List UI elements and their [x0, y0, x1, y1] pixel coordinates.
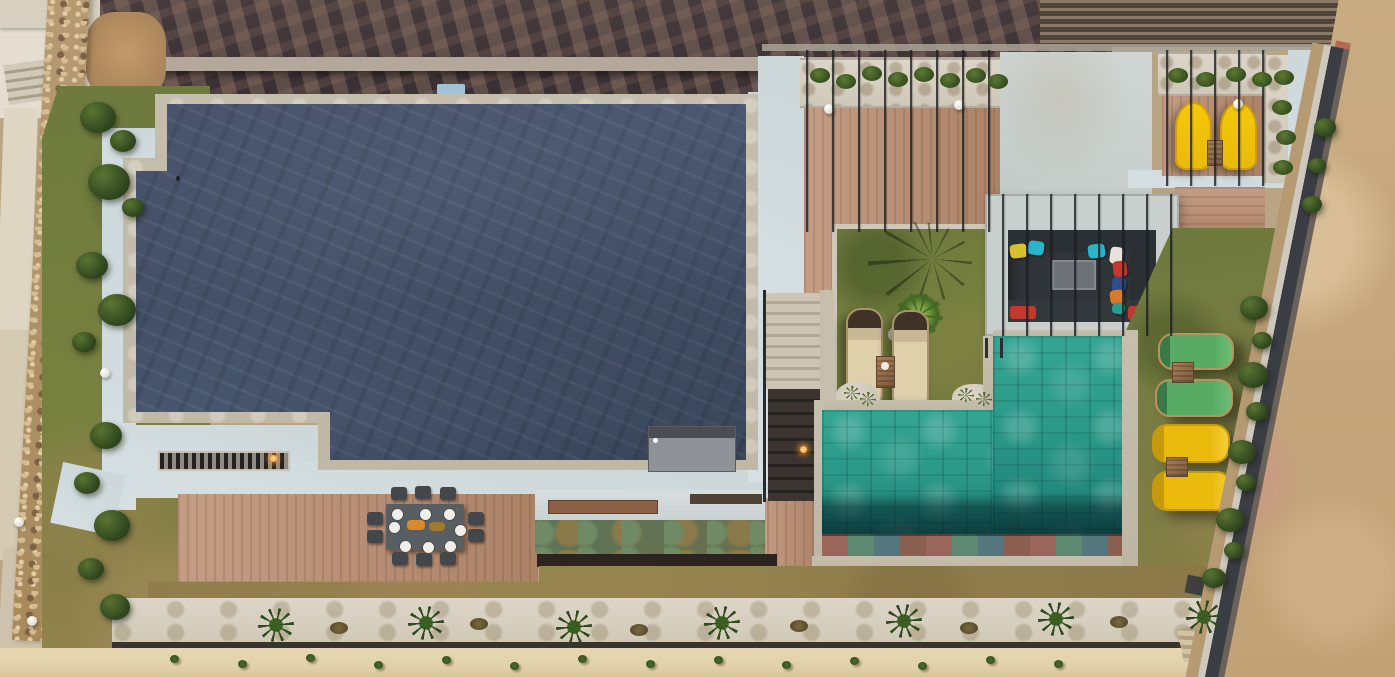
path-plant: [510, 662, 519, 670]
planter-plant: [862, 66, 882, 81]
pool-ladder: [985, 338, 1003, 358]
wall-bush: [1302, 196, 1322, 213]
pergola-bar: [1190, 50, 1192, 186]
green-sun-lounger: [1158, 333, 1234, 370]
garden-globe-light: [27, 616, 37, 626]
palm-tree-shadow: [868, 222, 972, 304]
plant-tuft: [630, 624, 648, 636]
pergola-bar: [1002, 194, 1004, 336]
roof-speck: [176, 176, 180, 181]
dining-chair: [367, 512, 383, 525]
dining-plate: [420, 509, 431, 520]
wall-bush: [1238, 362, 1268, 388]
dining-chair: [440, 552, 456, 565]
deck-lamp-lit: [270, 455, 277, 462]
lounge-pillow-cyan: [1027, 240, 1045, 256]
dining-chair: [367, 530, 383, 543]
plant-tuft: [470, 618, 488, 630]
garden-bush: [122, 198, 144, 217]
bed-palm: [408, 606, 444, 640]
lounger-side-table: [876, 356, 895, 388]
path-plant: [986, 656, 995, 664]
planter-plant: [940, 73, 960, 88]
plant-tuft: [960, 622, 978, 634]
dining-plate: [400, 541, 411, 552]
planter-plant: [836, 74, 856, 89]
garden-bush: [90, 422, 122, 449]
pergola-bar: [832, 50, 834, 232]
garden-globe-light: [14, 517, 24, 527]
red-cushion: [1010, 306, 1036, 319]
garden-bush: [76, 252, 108, 279]
lounge-pillow-red: [1112, 260, 1128, 278]
wall-bush: [1252, 332, 1272, 349]
pocket-plant: [844, 386, 860, 400]
garden-bush: [78, 558, 104, 580]
path-plant: [374, 661, 383, 669]
garden-bush: [88, 164, 130, 200]
garden-bush: [74, 472, 100, 494]
planter-plant: [1273, 160, 1293, 175]
clerestory-slot: [690, 494, 762, 504]
pocket-plant: [860, 392, 876, 406]
garden-bush: [100, 594, 130, 620]
planter-plant: [810, 68, 830, 83]
pool-deep-end: [822, 492, 1123, 536]
plant-tuft: [790, 620, 808, 632]
pergola-bar: [1262, 50, 1264, 186]
path-plant: [646, 660, 655, 668]
planter-plant: [1168, 68, 1188, 83]
dining-plate: [423, 542, 434, 553]
bed-palm: [258, 608, 294, 642]
pocket-plant: [958, 388, 974, 402]
planter-plant: [1226, 67, 1246, 82]
green-sun-lounger: [1155, 379, 1233, 417]
blue-cover-object: [437, 84, 465, 96]
path-plant: [1054, 660, 1063, 668]
path-plant: [170, 655, 179, 663]
pergola-bar: [1170, 194, 1172, 336]
pergola-bar: [1166, 50, 1168, 186]
dining-chair: [391, 487, 407, 500]
wall-bush: [1216, 508, 1244, 532]
tan-sun-lounger: [892, 310, 929, 411]
lounge-pillow-yellow: [1009, 243, 1028, 259]
bed-palm: [1038, 602, 1074, 636]
pool-coping: [1122, 330, 1138, 572]
food-platter: [407, 520, 425, 530]
path-plant: [782, 661, 791, 669]
pergola-bar: [962, 50, 964, 232]
planter-plant: [1272, 100, 1292, 115]
garden-bush: [110, 130, 136, 152]
pergola-bar: [936, 50, 938, 232]
dining-plate: [389, 522, 400, 533]
concrete-walkway-stairs: [758, 56, 804, 300]
garden-bush: [94, 510, 130, 541]
pergola-bar: [1050, 194, 1052, 336]
stone-steps: [766, 293, 822, 389]
dining-plate: [444, 509, 455, 520]
planter-plant: [1276, 130, 1296, 145]
lounger-side-table: [1172, 362, 1194, 383]
planter-plant: [988, 74, 1008, 89]
wall-bush: [1240, 296, 1268, 320]
dining-wood-deck: [178, 494, 538, 594]
pergola-bar: [1098, 194, 1100, 336]
dining-chair: [415, 486, 431, 499]
bed-palm: [704, 606, 740, 640]
garden-bush: [98, 294, 136, 326]
dining-plate: [392, 509, 403, 520]
bed-palm: [556, 610, 592, 644]
bed-palm: [886, 604, 922, 638]
garden-globe-light: [100, 368, 110, 378]
planter-plant: [888, 72, 908, 87]
planter-plant: [966, 68, 986, 83]
path-plant: [442, 656, 451, 664]
pergola-bar: [910, 50, 912, 232]
path-plant: [918, 662, 927, 670]
pergola-top-beam: [762, 44, 1342, 51]
dining-chair: [468, 512, 484, 525]
pergola-bar: [1122, 194, 1124, 336]
wall-bush: [1224, 542, 1244, 559]
path-plant: [578, 655, 587, 663]
pergola-bar: [1146, 194, 1148, 336]
dining-chair: [392, 552, 408, 565]
wood-inset-strip: [548, 500, 658, 514]
pergola-bar: [1026, 194, 1028, 336]
bed-palm: [1186, 600, 1222, 634]
lounge-pillow-cyan: [1087, 243, 1106, 259]
plant-tuft: [1110, 616, 1128, 628]
planter-plant: [914, 67, 934, 82]
pergola-bar: [1074, 194, 1076, 336]
path-plant: [238, 660, 247, 668]
plant-tuft: [330, 622, 348, 634]
stair-lamp-lit: [800, 446, 807, 453]
yellow-sun-lounger: [1152, 424, 1230, 463]
pergola-bar: [884, 50, 886, 232]
planter-plant: [1274, 70, 1294, 85]
wall-bush: [1228, 440, 1256, 464]
dining-plate: [455, 525, 466, 536]
wall-bush: [1314, 118, 1336, 137]
path-plant: [850, 657, 859, 665]
path-plant: [714, 656, 723, 664]
lounger-side-table: [1166, 457, 1188, 477]
pergola-bar: [806, 50, 808, 232]
dining-chair: [440, 487, 456, 500]
garden-bush: [80, 102, 116, 133]
food-platter: [429, 522, 445, 531]
pergola-bar: [858, 50, 860, 232]
dining-chair: [468, 529, 484, 542]
aerial-villa-photo: [0, 0, 1395, 677]
wall-bush: [1246, 402, 1268, 421]
roof-vent-panel: [648, 426, 736, 472]
planter-plant: [1196, 72, 1216, 87]
pergola-bar: [1214, 50, 1216, 186]
planter-plant: [1252, 72, 1272, 87]
shadow-band: [537, 554, 777, 567]
dining-plate: [445, 541, 456, 552]
path-plant: [306, 654, 315, 662]
wall-bush: [1236, 474, 1256, 491]
green-stone-wall-strip: [535, 520, 765, 554]
top-pergola-slats: [1040, 0, 1342, 47]
dining-chair: [416, 553, 432, 566]
vent-dot: [653, 438, 658, 443]
pocket-plant: [976, 392, 992, 406]
